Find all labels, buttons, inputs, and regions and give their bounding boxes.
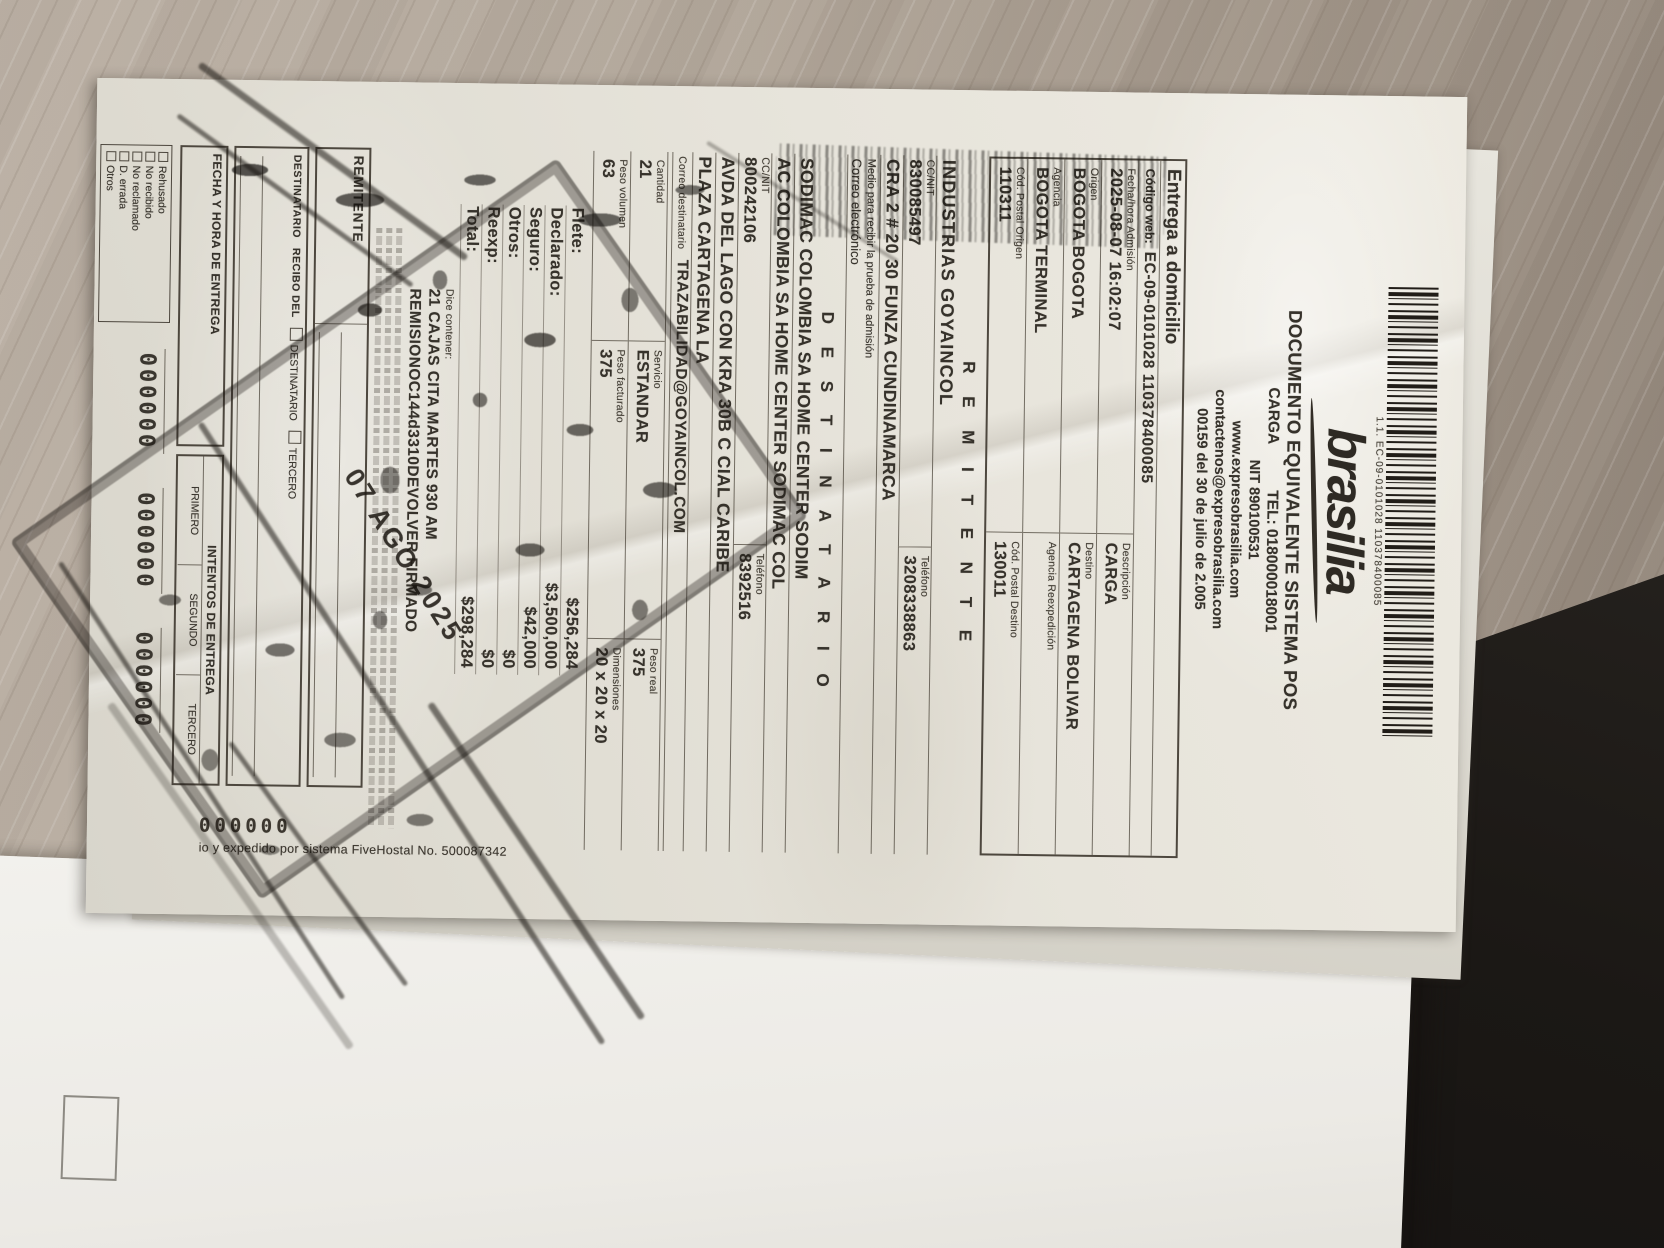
charge-label: Flete:: [567, 208, 587, 255]
measure-value: 375: [592, 349, 615, 630]
option-destinatario: DESTINATARIO: [286, 345, 299, 421]
measure-value: 21: [633, 160, 654, 333]
charges-block: Flete:$256,284 Declarado:$3,500,000 Segu…: [454, 204, 587, 676]
reason-label: D. errada: [117, 165, 130, 209]
non-delivery-reasons: Rehusado No recibido No reclamado D. err…: [98, 144, 172, 323]
phone-line: TEL: 018000018001: [1260, 490, 1281, 632]
charge-value: $3,500,000: [541, 583, 561, 670]
measure-label: Peso volumen: [615, 159, 629, 332]
received-by-label: RECIBO DEL: [289, 248, 302, 318]
charge-value: $0: [499, 649, 518, 668]
web-code-label: Código web:: [1143, 169, 1158, 244]
attempt-col: SEGUNDO: [176, 565, 202, 675]
checkbox-icon: [145, 152, 155, 162]
measure-value: 63: [596, 159, 617, 332]
zeros-group: 000000: [131, 488, 163, 594]
shipping-receipt: 1.1. EC-09-0101028 110378400085 brasilia…: [86, 78, 1468, 932]
barcode: [1382, 287, 1438, 738]
measure-label: Dimensiones: [608, 647, 623, 842]
reason-label: No recibido: [142, 166, 155, 219]
measure-value: 375: [626, 648, 648, 843]
option-tercero: TERCERO: [285, 448, 298, 500]
reason-label: No reclamado: [129, 165, 142, 231]
measure-label: Peso real: [645, 648, 660, 843]
checkbox-icon: [107, 151, 117, 161]
reason-label: Rehusado: [155, 166, 168, 214]
measure-label: Cantidad: [652, 160, 666, 333]
measure-value: 20 x 20 x 20: [589, 647, 611, 842]
checkbox-icon: [119, 151, 129, 161]
zeros-group: 000000: [133, 349, 165, 455]
brand-logo: brasilia: [1314, 161, 1373, 861]
checkbox-icon: [158, 152, 168, 162]
carga-label: CARGA: [1263, 387, 1283, 444]
photo-scene: 1.1. EC-09-0101028 110378400085 brasilia…: [0, 0, 1664, 1248]
checkbox-icon: [289, 328, 302, 341]
measure-label: Peso facturado: [611, 349, 627, 630]
checkbox-icon: [288, 431, 301, 444]
paper-rectangle-mark: [61, 1095, 120, 1181]
receiver-email-label: Correo destinatario: [675, 156, 688, 249]
charge-label: Otros:: [504, 207, 524, 259]
charge-label: Reexp:: [483, 206, 503, 264]
checkbox-icon: [132, 151, 142, 161]
charge-value: $0: [478, 649, 497, 668]
web-code-value: EC-09-0101028 110378400085: [1137, 252, 1158, 484]
charge-label: Declarado:: [546, 207, 566, 297]
charge-value: $42,000: [520, 606, 540, 669]
measure-value: ESTANDAR: [629, 350, 652, 631]
attempt-col: PRIMERO: [177, 456, 203, 565]
charge-label: Seguro:: [525, 207, 545, 272]
charge-value: $256,284: [562, 597, 582, 669]
receipt-header: brasilia DOCUMENTO EQUIVALENTE SISTEMA P…: [1186, 159, 1373, 860]
contents-block: Dice contener: 21 CAJAS CITA MARTES 930 …: [367, 288, 456, 848]
charge-label: Total:: [462, 206, 482, 252]
delivery-info-table: Entrega a domicilio Código web: EC-09-01…: [980, 156, 1188, 858]
reason-label: Otros: [104, 165, 116, 191]
charge-value: $298,284: [457, 596, 477, 668]
